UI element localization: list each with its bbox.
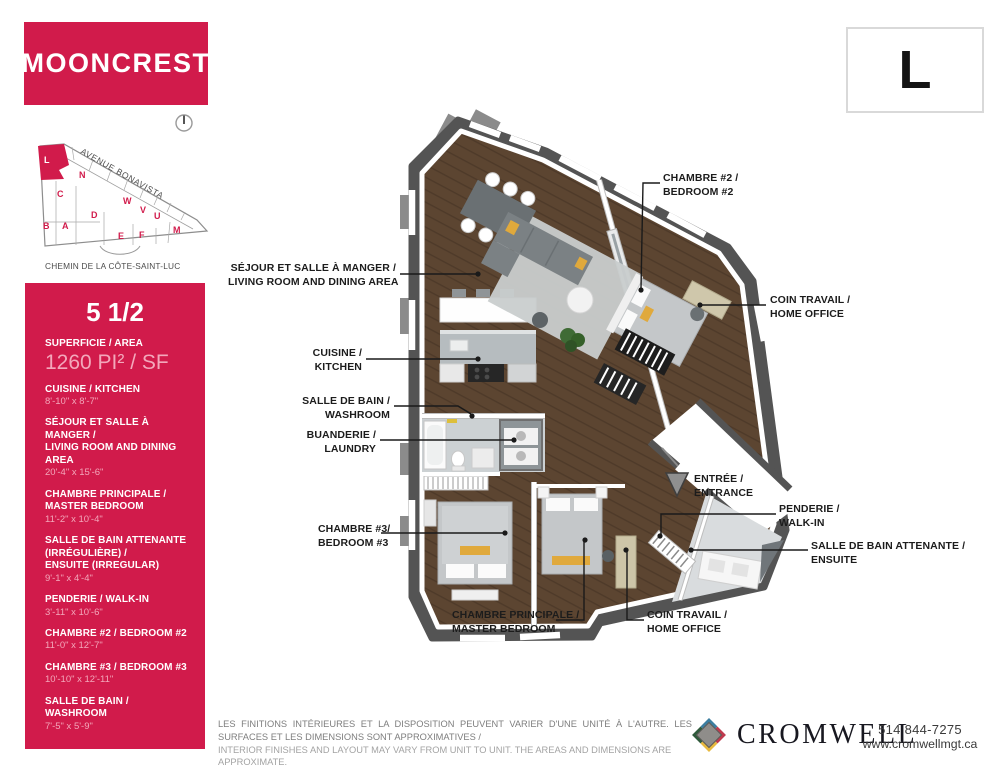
label-walkin: PENDERIE / WALK-IN	[779, 503, 840, 531]
floorplan	[400, 109, 806, 638]
label-living-dining: SÉJOUR ET SALLE À MANGER / LIVING ROOM A…	[228, 262, 396, 290]
label-kitchen: CUISINE / KITCHEN	[278, 347, 362, 375]
label-home-office-top: COIN TRAVAIL / HOME OFFICE	[770, 294, 850, 322]
room-spec: CHAMBRE #3 / BEDROOM #3 10'-10" x 12'-11…	[45, 662, 191, 687]
room-spec: SALLE DE BAIN / WASHROOM 7'-5" x 5'-9"	[45, 696, 191, 733]
brand-header: MOONCREST	[24, 22, 208, 105]
master-bed	[538, 487, 607, 574]
room-spec: SÉJOUR ET SALLE À MANGER / LIVING ROOM A…	[45, 417, 191, 479]
disclaimer: LES FINITIONS INTÉRIEURES ET LA DISPOSIT…	[218, 718, 692, 769]
svg-text:L: L	[44, 155, 50, 165]
hall-closet	[424, 476, 488, 490]
phone-number: 514 844-7275	[858, 722, 982, 737]
svg-text:M: M	[173, 225, 181, 235]
svg-text:F: F	[139, 230, 145, 240]
svg-text:N: N	[79, 170, 86, 180]
svg-text:W: W	[123, 196, 132, 206]
label-home-office-bottom: COIN TRAVAIL / HOME OFFICE	[647, 609, 727, 637]
spec-sidebar: 5 1/2 SUPERFICIE / AREA 1260 PI² / SF CU…	[25, 283, 205, 749]
street-chemin: CHEMIN DE LA CÔTE-SAINT-LUC	[45, 261, 180, 271]
unit-letter: L	[899, 39, 932, 101]
pouf	[532, 312, 548, 328]
site-map: L N C D W V U B A E F M AVENUE BONAVISTA…	[38, 115, 207, 271]
label-washroom: SALLE DE BAIN / WASHROOM	[266, 395, 390, 423]
room-spec: CUISINE / KITCHEN 8'-10" x 8'-7"	[45, 384, 191, 409]
page-title: MOONCREST	[22, 48, 211, 79]
label-bedroom2: CHAMBRE #2 / BEDROOM #2	[663, 172, 738, 200]
room-spec: PENDERIE / WALK-IN 3'-11" x 10'-6"	[45, 594, 191, 619]
area-spec: SUPERFICIE / AREA 1260 PI² / SF	[45, 338, 191, 375]
unit-type: 5 1/2	[39, 297, 191, 328]
coffee-table	[567, 287, 593, 313]
model-note: CE MODÈLE CORRESPOND À L'APPARTEMENT / T…	[45, 751, 191, 773]
cromwell-diamond-icon	[690, 716, 728, 754]
svg-text:B: B	[43, 221, 50, 231]
svg-text:D: D	[91, 210, 98, 220]
svg-text:E: E	[118, 231, 124, 241]
svg-text:A: A	[62, 221, 69, 231]
website-link[interactable]: www.cromwellmgt.ca	[858, 737, 982, 751]
svg-text:V: V	[140, 205, 146, 215]
label-master-bedroom: CHAMBRE PRINCIPALE / MASTER BEDROOM	[452, 609, 579, 637]
room-spec: CHAMBRE #2 / BEDROOM #2 11'-0" x 12'-7"	[45, 628, 191, 653]
svg-text:U: U	[154, 211, 161, 221]
compass-icon	[176, 115, 192, 131]
disclaimer-en: INTERIOR FINISHES AND LAYOUT MAY VARY FR…	[218, 744, 692, 770]
contact-block: 514 844-7275 www.cromwellmgt.ca	[858, 722, 982, 751]
room-spec: CHAMBRE PRINCIPALE / MASTER BEDROOM 11'-…	[45, 489, 191, 526]
area-value: 1260 PI² / SF	[45, 351, 191, 375]
svg-text:C: C	[57, 189, 64, 199]
label-laundry: BUANDERIE / LAUNDRY	[270, 429, 376, 457]
room-spec: SALLE DE BAIN ATTENANTE (IRRÉGULIÈRE) / …	[45, 535, 191, 585]
disclaimer-fr: LES FINITIONS INTÉRIEURES ET LA DISPOSIT…	[218, 719, 692, 742]
label-ensuite: SALLE DE BAIN ATTENANTE / ENSUITE	[811, 540, 965, 568]
unit-letter-box: L	[846, 27, 984, 113]
label-entrance: ENTRÉE / ENTRANCE	[694, 473, 753, 501]
label-bedroom3: CHAMBRE #3/ BEDROOM #3	[318, 523, 390, 551]
laundry-area	[500, 420, 542, 470]
